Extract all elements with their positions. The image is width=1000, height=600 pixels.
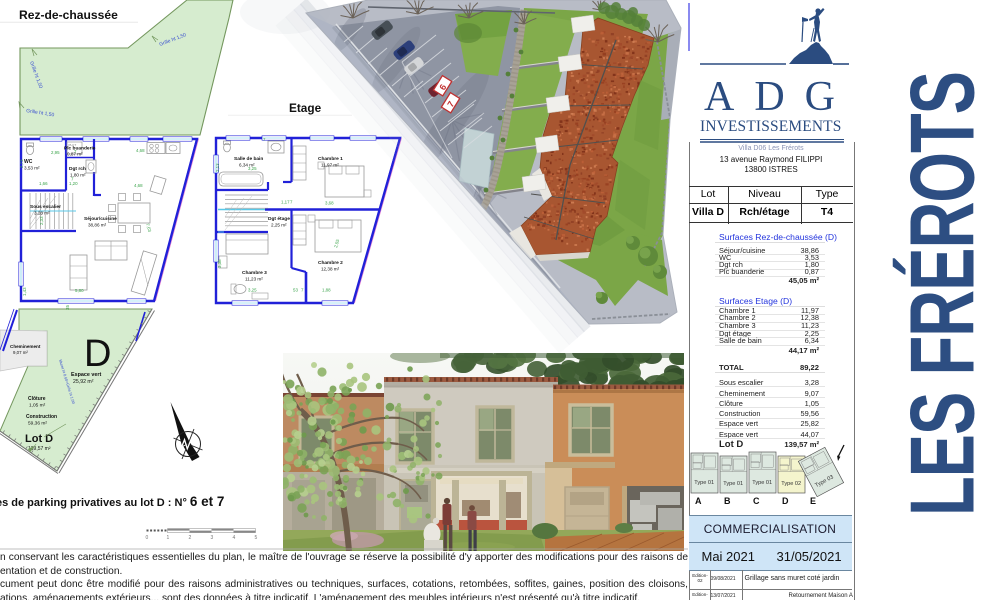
svg-text:Type 01: Type 01 [752, 480, 772, 486]
svg-text:Type 01: Type 01 [723, 481, 743, 487]
svg-text:Type 02: Type 02 [781, 481, 801, 487]
svg-text:Type 01: Type 01 [694, 480, 714, 486]
